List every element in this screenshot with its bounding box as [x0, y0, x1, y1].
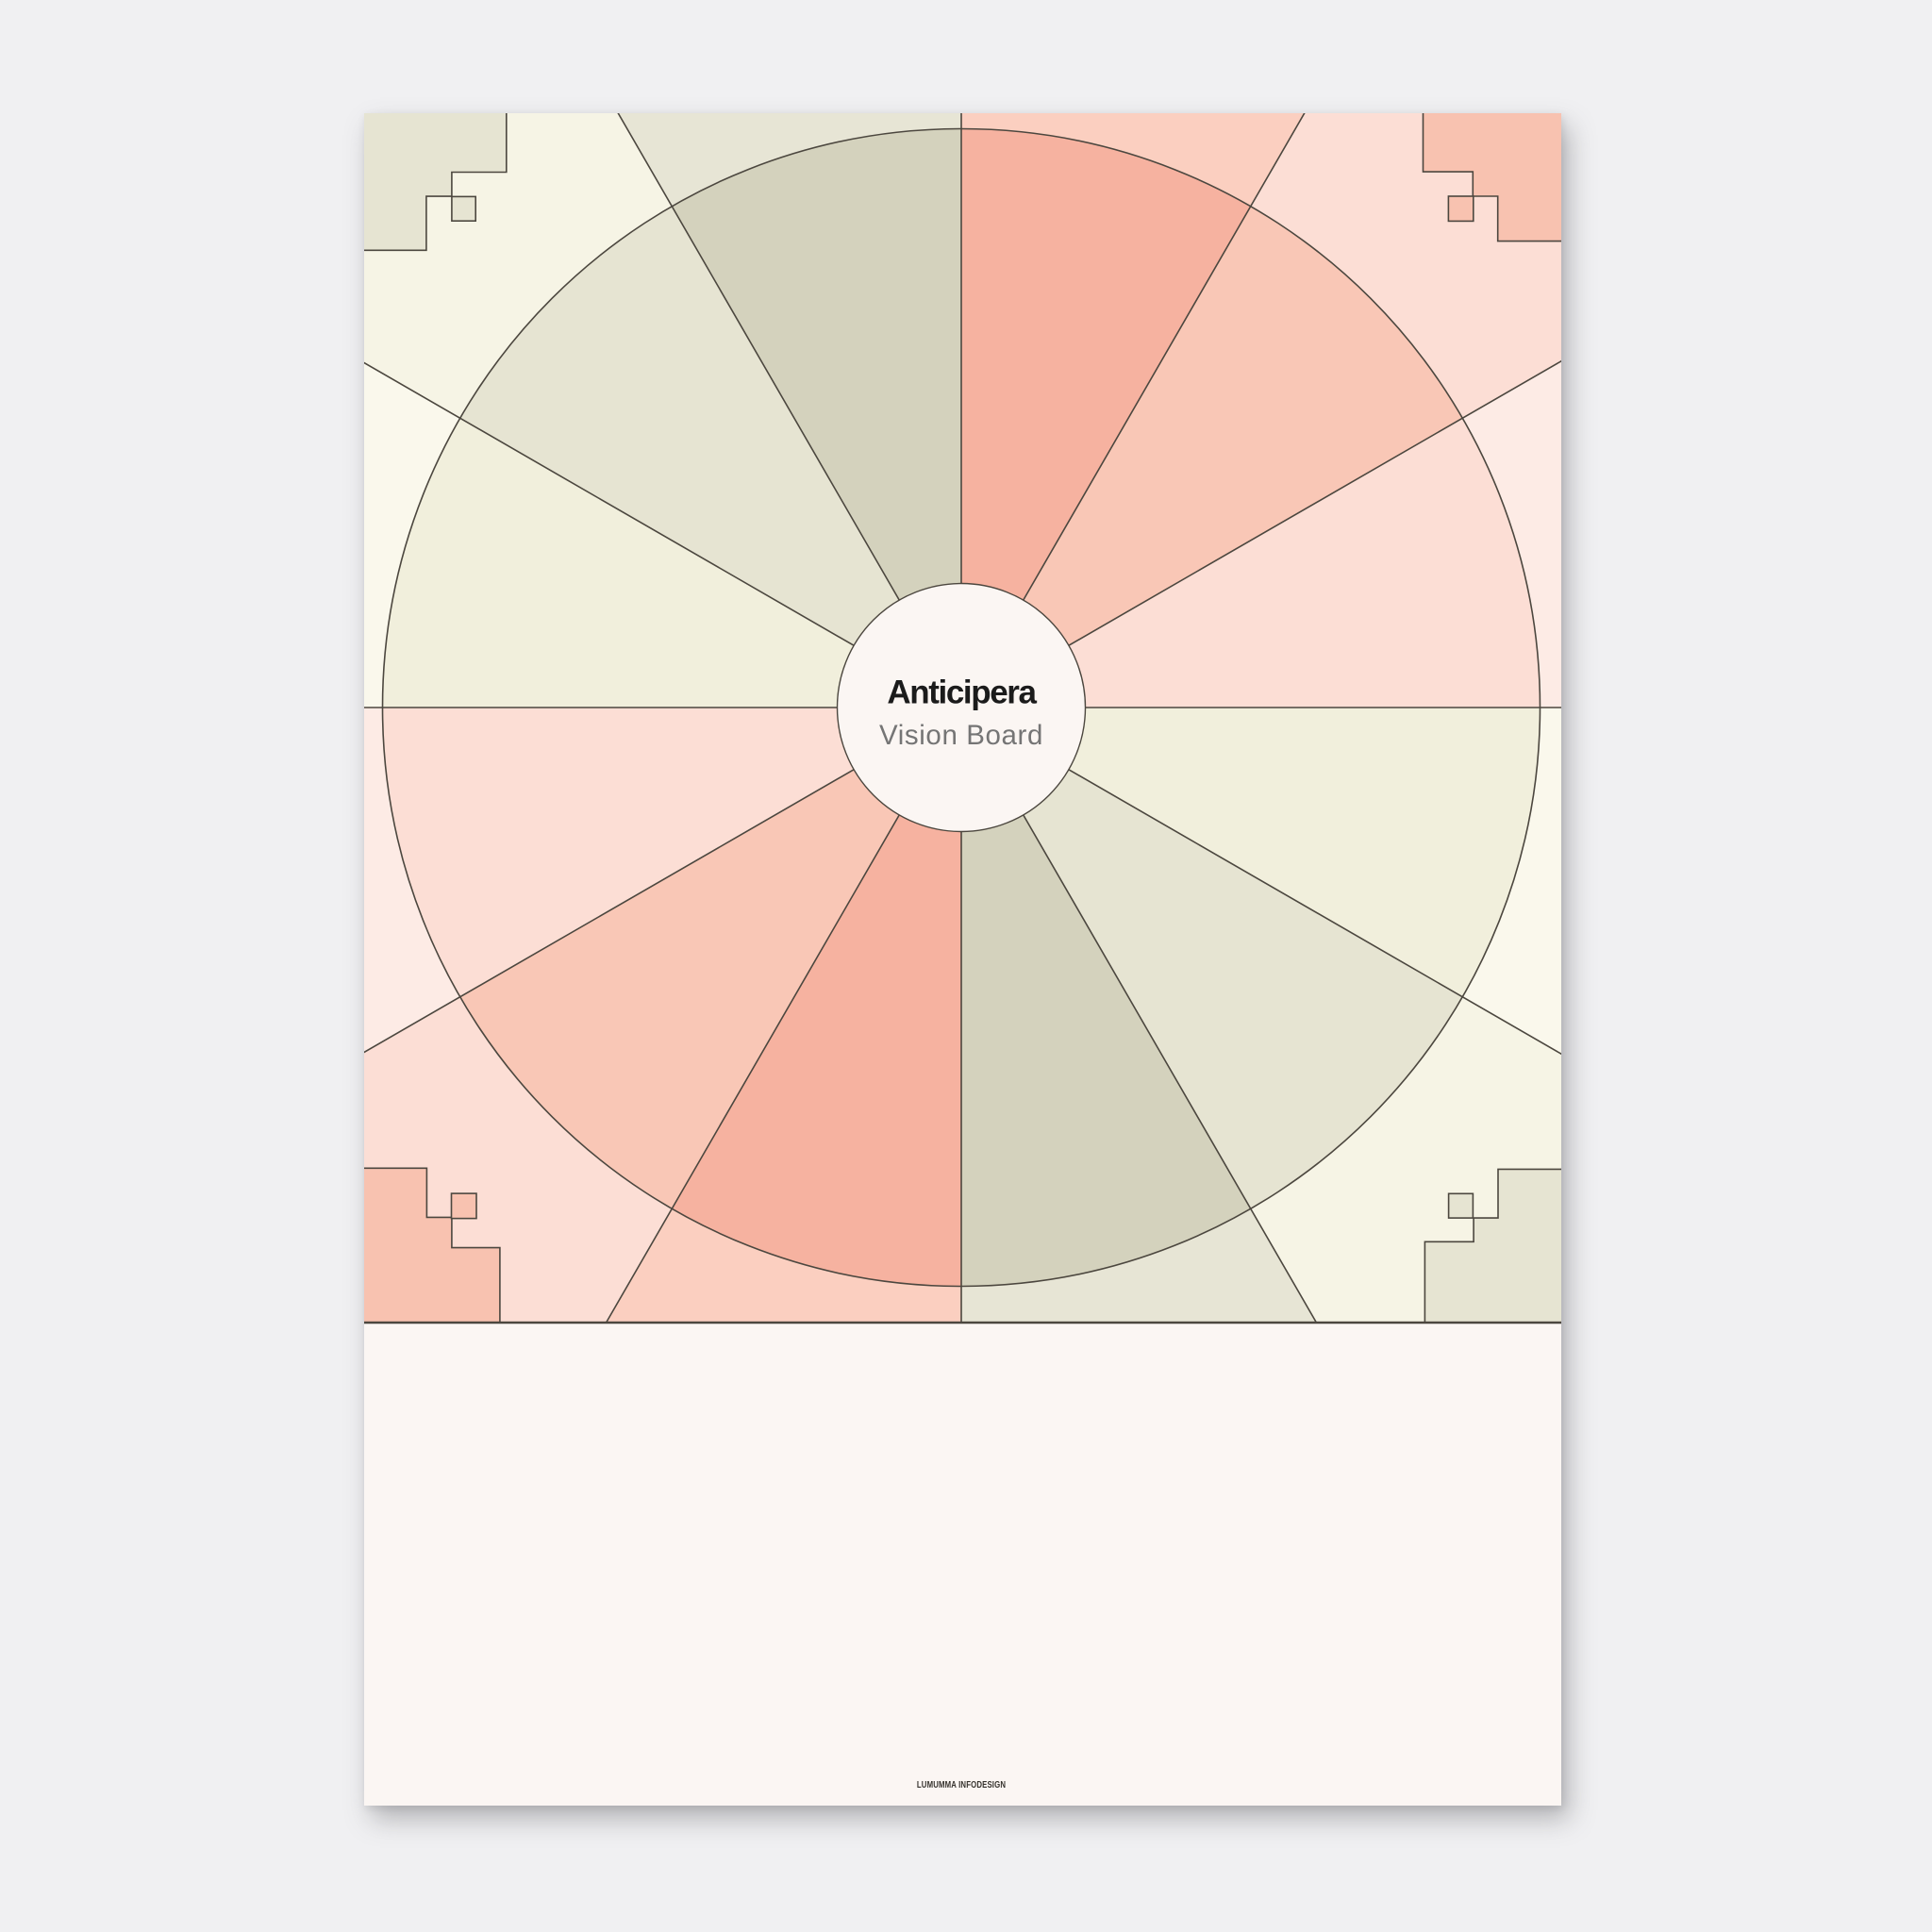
svg-text:Vision Board: Vision Board — [879, 720, 1043, 751]
svg-text:Anticipera: Anticipera — [887, 675, 1037, 711]
svg-text:LUMUMMA INFODESIGN: LUMUMMA INFODESIGN — [917, 1779, 1006, 1790]
